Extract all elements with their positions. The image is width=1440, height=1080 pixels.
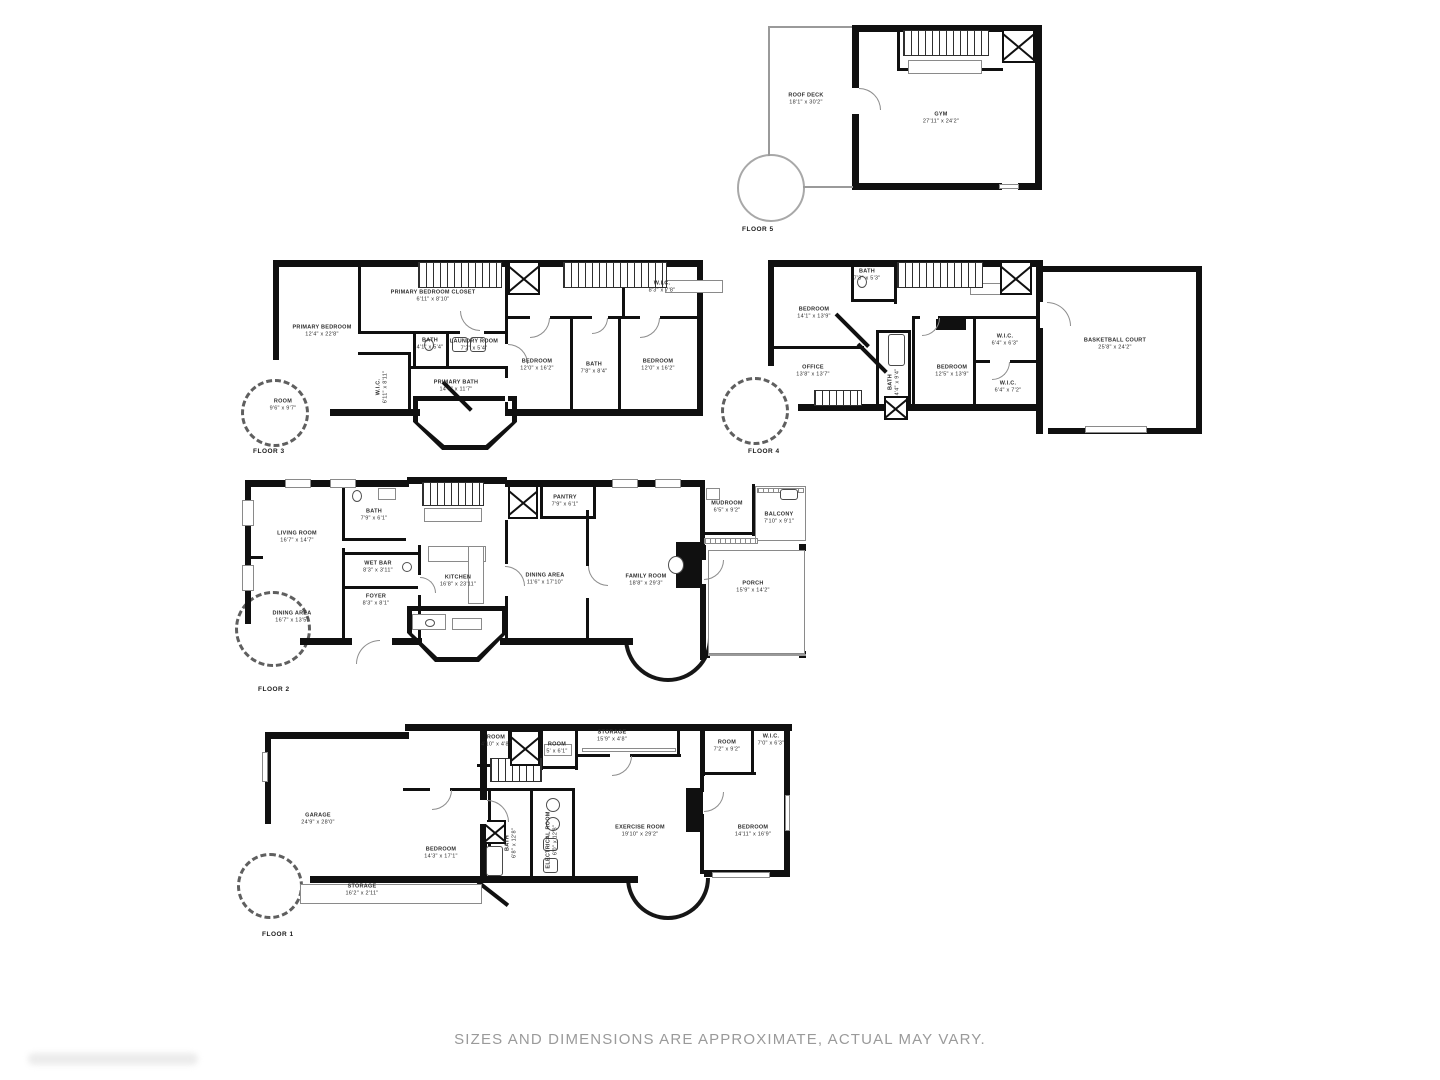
- room-label: BEDROOM14'3" x 17'1": [424, 847, 457, 862]
- room-name: BEDROOM: [935, 365, 968, 372]
- detail-box: [330, 479, 356, 488]
- bath-fixture-icon: [546, 798, 560, 812]
- room-dimensions: 15'9" x 14'2": [736, 588, 769, 595]
- room-dimensions: 6'0" x 12'8": [553, 811, 560, 868]
- wall: [912, 316, 915, 406]
- room-dimensions: 7'0" x 6'3": [758, 741, 785, 748]
- wall: [345, 552, 421, 555]
- room-name: BATH: [417, 338, 444, 345]
- wall: [1035, 25, 1042, 190]
- room-label: BASKETBALL COURT25'8" x 24'2": [1084, 338, 1146, 353]
- room-name: BATH: [581, 362, 608, 369]
- room-label: FAMILY ROOM18'8" x 29'3": [626, 574, 667, 589]
- wall: [488, 788, 574, 791]
- wall: [342, 538, 406, 541]
- floor-label-floor-1: FLOOR 1: [262, 931, 294, 938]
- wall: [593, 484, 596, 518]
- room-name: ROOF DECK: [788, 93, 823, 100]
- wall: [768, 260, 774, 366]
- hatched-stairs-icon: [814, 390, 862, 406]
- room-dimensions: 8'3" x 3'11": [363, 568, 393, 575]
- wall: [851, 299, 897, 302]
- disclaimer-text: SIZES AND DIMENSIONS ARE APPROXIMATE, AC…: [454, 1031, 986, 1048]
- room-label: LIVING ROOM16'7" x 14'7": [277, 531, 317, 546]
- wall: [700, 724, 705, 776]
- detail-box: [1085, 426, 1147, 433]
- room-name: BEDROOM: [424, 847, 457, 854]
- room-dimensions: 16'8" x 23'11": [440, 582, 476, 589]
- room-name: BATH: [505, 828, 512, 858]
- room-label: WET BAR8'3" x 3'11": [363, 561, 393, 576]
- wall: [897, 32, 900, 70]
- room-name: PRIMARY BEDROOM CLOSET: [391, 290, 476, 297]
- door-arc-icon: [992, 362, 1010, 380]
- door-arc-icon: [640, 318, 660, 338]
- room-label: EXERCISE ROOM19'10" x 29'2": [615, 825, 665, 840]
- wall: [413, 334, 416, 369]
- hatched-stairs-icon: [422, 482, 484, 506]
- detail-box: [242, 500, 254, 526]
- door-arc-icon: [922, 318, 940, 336]
- room-dimensions: 7'10" x 9'1": [764, 519, 794, 526]
- bath-fixture-icon: [402, 562, 412, 572]
- room-label: KITCHEN16'8" x 23'11": [440, 575, 476, 590]
- x-box-icon: [508, 485, 538, 519]
- wall: [751, 726, 754, 774]
- room-name: BEDROOM: [735, 825, 771, 832]
- wall: [245, 556, 263, 559]
- room-name: PANTRY: [552, 495, 579, 502]
- room-label: ROOM5' x 6'1": [546, 742, 567, 757]
- room-label: BATH7'3" x 5'3": [854, 269, 881, 284]
- detail-box: [999, 184, 1019, 189]
- room-name: BATH: [888, 369, 895, 396]
- deck-line: [708, 654, 806, 656]
- room-label: BEDROOM14'1" x 13'9": [797, 307, 830, 322]
- wall: [586, 598, 589, 640]
- wall: [310, 876, 484, 883]
- room-dimensions: 12'0" x 16'2": [520, 366, 553, 373]
- wall: [245, 480, 409, 487]
- detail-box: [242, 565, 254, 591]
- room-dimensions: 9'6" x 9'7": [270, 406, 297, 413]
- room-name: BEDROOM: [520, 359, 553, 366]
- wall: [411, 366, 508, 369]
- x-box-icon: [510, 730, 540, 766]
- door-arc-icon: [592, 318, 608, 334]
- deck-line: [768, 26, 852, 28]
- room-dimensions: 6'4" x 7'2": [995, 388, 1022, 395]
- room-name: ELECTRICAL ROOM: [546, 811, 553, 868]
- room-label: OFFICE13'8" x 13'7": [796, 365, 829, 380]
- room-label: BATH7'8" x 8'4": [581, 362, 608, 377]
- room-name: LIVING ROOM: [277, 531, 317, 538]
- room-dimensions: 16'2" x 2'11": [345, 891, 378, 898]
- room-name: W.I.C.: [376, 371, 383, 404]
- room-name: KITCHEN: [440, 575, 476, 582]
- room-name: DINING AREA: [526, 573, 565, 580]
- room-label: BEDROOM12'5" x 13'9": [935, 365, 968, 380]
- wall: [358, 331, 508, 334]
- room-dimensions: 14'1" x 13'9": [797, 314, 830, 321]
- bay-window-curve: [624, 638, 712, 682]
- room-label: STORAGE15'9" x 4'8": [597, 730, 627, 745]
- room-label: ROOM9'6" x 9'7": [270, 399, 297, 414]
- room-dimensions: 16'7" x 14'7": [277, 538, 317, 545]
- wall: [1018, 183, 1042, 190]
- room-dimensions: 11'6" x 17'10": [526, 580, 565, 587]
- room-name: FAMILY ROOM: [626, 574, 667, 581]
- wall: [540, 766, 578, 769]
- wall: [586, 510, 589, 566]
- room-dimensions: 4'1" x 5'4": [417, 345, 444, 352]
- bath-fixture-icon: [780, 489, 798, 500]
- door-arc-icon: [1047, 302, 1071, 326]
- room-label: W.I.C.8'3" x 7'8": [649, 281, 676, 296]
- wall: [500, 638, 633, 645]
- floorplan-canvas: ROOF DECK18'1" x 30'2"GYM27'11" x 24'2"F…: [0, 0, 1440, 1080]
- room-label: ELECTRICAL ROOM6'0" x 12'8": [546, 811, 561, 868]
- room-name: STORAGE: [345, 884, 378, 891]
- room-dimensions: 15'9" x 4'8": [597, 737, 627, 744]
- room-label: BEDROOM12'0" x 16'2": [641, 359, 674, 374]
- room-name: BASKETBALL COURT: [1084, 338, 1146, 345]
- room-name: PRIMARY BEDROOM: [292, 325, 351, 332]
- wall: [570, 316, 573, 412]
- wall: [342, 484, 345, 541]
- wall: [876, 330, 910, 333]
- hatched-stairs-icon: [903, 30, 989, 56]
- room-dimensions: 25'8" x 24'2": [1084, 345, 1146, 352]
- room-name: BALCONY: [764, 512, 794, 519]
- room-dimensions: 8'3" x 7'8": [649, 288, 676, 295]
- wall: [446, 334, 449, 369]
- room-label: BEDROOM14'11" x 16'9": [735, 825, 771, 840]
- detail-box: [452, 618, 482, 630]
- room-label: W.I.C.6'4" x 6'3": [992, 334, 1019, 349]
- room-name: W.I.C.: [649, 281, 676, 288]
- room-label: STORAGE16'2" x 2'11": [345, 884, 378, 899]
- detail-box: [712, 872, 770, 878]
- wall: [677, 726, 680, 756]
- wall-diagonal: [835, 313, 870, 348]
- x-box-icon: [884, 396, 908, 420]
- room-dimensions: 6'4" x 6'3": [992, 341, 1019, 348]
- wall: [273, 260, 279, 360]
- room-name: GYM: [923, 112, 959, 119]
- room-label: PRIMARY BATH14'6" x 11'7": [434, 380, 478, 395]
- deck-line: [803, 186, 853, 188]
- room-label: PORCH15'9" x 14'2": [736, 581, 769, 596]
- detail-box: [655, 479, 681, 488]
- deck-curve: [737, 154, 805, 222]
- x-box-icon: [484, 820, 506, 844]
- wall: [700, 772, 756, 775]
- room-name: ROOM: [546, 742, 567, 749]
- wall: [936, 318, 966, 330]
- bath-fixture-icon: [668, 556, 684, 574]
- room-label: ROOM4'10" x 4'8": [481, 735, 511, 750]
- room-name: ROOM: [714, 740, 741, 747]
- door-arc-icon: [432, 790, 452, 810]
- room-label: PANTRY7'9" x 6'1": [552, 495, 579, 510]
- room-name: LAUNDRY ROOM: [450, 339, 498, 346]
- detail-box: [262, 752, 268, 782]
- door-arc-icon: [487, 800, 509, 822]
- room-name: W.I.C.: [995, 381, 1022, 388]
- hatched-stairs-icon: [418, 262, 502, 288]
- room-dimensions: 19'10" x 29'2": [615, 832, 665, 839]
- room-name: ROOM: [270, 399, 297, 406]
- detail-box: [612, 479, 638, 488]
- wall: [770, 346, 864, 349]
- room-label: BEDROOM12'0" x 16'2": [520, 359, 553, 374]
- detail-box: [424, 508, 482, 522]
- wall: [330, 409, 420, 416]
- room-label: GARAGE24'9" x 28'0": [301, 813, 334, 828]
- room-dimensions: 4'4" x 9'4": [895, 369, 902, 396]
- door-opening: [852, 88, 859, 114]
- faint-watermark: [28, 1053, 198, 1065]
- room-name: STORAGE: [597, 730, 627, 737]
- room-dimensions: 6'11" x 8'10": [391, 297, 476, 304]
- room-label: W.I.C.6'4" x 7'2": [995, 381, 1022, 396]
- bay-window-curve: [721, 377, 789, 445]
- room-dimensions: 13'8" x 13'7": [796, 372, 829, 379]
- wall: [408, 352, 411, 412]
- room-dimensions: 14'11" x 16'9": [735, 832, 771, 839]
- room-name: EXERCISE ROOM: [615, 825, 665, 832]
- room-dimensions: 7'8" x 8'4": [581, 369, 608, 376]
- bath-fixture-icon: [352, 490, 362, 502]
- room-dimensions: 7'9" x 6'1": [361, 516, 388, 523]
- room-dimensions: 8'3" x 8'1": [363, 601, 390, 608]
- room-label: BATH6'8" x 12'8": [505, 828, 520, 858]
- room-label: ROOF DECK18'1" x 30'2": [788, 93, 823, 108]
- wall: [700, 772, 704, 874]
- wall-diagonal: [857, 343, 888, 374]
- room-dimensions: 7'3" x 5'3": [854, 276, 881, 283]
- floor-label-floor-5: FLOOR 5: [742, 226, 774, 233]
- wall: [852, 183, 1002, 190]
- room-dimensions: 6'8" x 12'8": [512, 828, 519, 858]
- room-label: FOYER8'3" x 8'1": [363, 594, 390, 609]
- room-label: PRIMARY BEDROOM12'4" x 22'8": [292, 325, 351, 340]
- wall: [358, 352, 410, 355]
- room-name: W.I.C.: [758, 734, 785, 741]
- room-dimensions: 27'11" x 24'2": [923, 119, 959, 126]
- door-arc-icon: [704, 792, 724, 812]
- room-label: GYM27'11" x 24'2": [923, 112, 959, 127]
- room-dimensions: 14'3" x 17'1": [424, 854, 457, 861]
- bath-fixture-icon: [425, 619, 435, 627]
- bay-window-curve: [626, 878, 710, 920]
- detail-box: [706, 488, 720, 500]
- wall: [505, 596, 508, 640]
- room-name: MUDROOM: [711, 501, 742, 508]
- room-label: BATH7'9" x 6'1": [361, 509, 388, 524]
- wall: [505, 520, 508, 566]
- room-dimensions: 7'9" x 6'1": [552, 502, 579, 509]
- detail-box: [285, 479, 311, 488]
- floor-label-floor-3: FLOOR 3: [253, 448, 285, 455]
- detail-box: [582, 748, 676, 752]
- room-name: ROOM: [481, 735, 511, 742]
- door-arc-icon: [505, 566, 525, 586]
- x-box-icon: [1002, 29, 1035, 63]
- wall: [358, 264, 361, 334]
- room-dimensions: 7'2" x 5'4": [450, 346, 498, 353]
- room-name: W.I.C.: [992, 334, 1019, 341]
- detail-box: [908, 60, 982, 74]
- room-dimensions: 6'5" x 9'2": [711, 508, 742, 515]
- room-name: FOYER: [363, 594, 390, 601]
- wall: [540, 484, 543, 518]
- door-opening: [505, 378, 508, 402]
- room-label: W.I.C.7'0" x 6'3": [758, 734, 785, 749]
- bath-fixture-icon: [888, 334, 905, 366]
- wall: [976, 316, 1038, 319]
- x-box-icon: [1000, 261, 1032, 295]
- room-label: W.I.C.6'11" x 8'11": [376, 371, 391, 404]
- room-name: PRIMARY BATH: [434, 380, 478, 387]
- room-name: BATH: [361, 509, 388, 516]
- room-dimensions: 24'9" x 28'0": [301, 820, 334, 827]
- wall: [572, 788, 575, 878]
- railing-grill-icon: [704, 538, 758, 544]
- x-box-icon: [508, 261, 540, 295]
- door-arc-icon: [588, 566, 608, 586]
- wall: [265, 732, 409, 739]
- room-name: PORCH: [736, 581, 769, 588]
- room-name: WET BAR: [363, 561, 393, 568]
- room-dimensions: 4'10" x 4'8": [481, 742, 511, 749]
- door-arc-icon: [859, 88, 881, 110]
- door-opening: [1040, 302, 1047, 328]
- wall: [908, 330, 911, 406]
- room-dimensions: 12'0" x 16'2": [641, 366, 674, 373]
- room-label: BATH4'1" x 5'4": [417, 338, 444, 353]
- room-name: OFFICE: [796, 365, 829, 372]
- room-name: DINING AREA: [273, 611, 312, 618]
- wall: [618, 316, 621, 412]
- door-opening: [460, 331, 484, 334]
- room-name: BEDROOM: [641, 359, 674, 366]
- floor-label-floor-2: FLOOR 2: [258, 686, 290, 693]
- room-dimensions: 6'11" x 8'11": [383, 371, 390, 404]
- room-dimensions: 12'5" x 13'9": [935, 372, 968, 379]
- detail-box: [785, 795, 790, 831]
- room-label: BALCONY7'10" x 9'1": [764, 512, 794, 527]
- detail-box: [300, 884, 482, 904]
- wall: [342, 548, 345, 642]
- room-dimensions: 18'1" x 30'2": [788, 100, 823, 107]
- door-arc-icon: [460, 311, 480, 331]
- room-dimensions: 18'8" x 29'3": [626, 581, 667, 588]
- door-arc-icon: [530, 318, 550, 338]
- wall: [702, 532, 755, 535]
- wall: [1042, 266, 1202, 272]
- room-label: ROOM7'2" x 9'2": [714, 740, 741, 755]
- wall: [505, 409, 703, 416]
- bath-fixture-icon: [486, 846, 503, 876]
- room-name: BEDROOM: [797, 307, 830, 314]
- wall: [1196, 266, 1202, 434]
- door-opening: [480, 800, 487, 824]
- room-label: DINING AREA11'6" x 17'10": [526, 573, 565, 588]
- room-dimensions: 7'2" x 9'2": [714, 747, 741, 754]
- room-label: BATH4'4" x 9'4": [888, 369, 903, 396]
- door-arc-icon: [612, 756, 632, 776]
- bay-window-curve: [237, 853, 303, 919]
- room-dimensions: 14'6" x 11'7": [434, 387, 478, 394]
- detail-box: [378, 488, 396, 500]
- hatched-stairs-icon: [897, 262, 983, 288]
- wall: [700, 482, 705, 545]
- wall: [575, 728, 578, 770]
- door-arc-icon: [420, 577, 436, 593]
- room-dimensions: 12'4" x 22'8": [292, 332, 351, 339]
- room-name: GARAGE: [301, 813, 334, 820]
- room-label: PRIMARY BEDROOM CLOSET6'11" x 8'10": [391, 290, 476, 305]
- room-label: LAUNDRY ROOM7'2" x 5'4": [450, 339, 498, 354]
- room-label: DINING AREA16'7" x 13'5": [273, 611, 312, 626]
- wall: [485, 876, 638, 883]
- wall: [345, 586, 421, 589]
- room-dimensions: 16'7" x 13'5": [273, 618, 312, 625]
- deck-line: [768, 26, 770, 156]
- room-name: BATH: [854, 269, 881, 276]
- wall: [530, 788, 533, 878]
- room-dimensions: 5' x 6'1": [546, 749, 567, 756]
- floor-label-floor-4: FLOOR 4: [748, 448, 780, 455]
- room-label: MUDROOM6'5" x 9'2": [711, 501, 742, 516]
